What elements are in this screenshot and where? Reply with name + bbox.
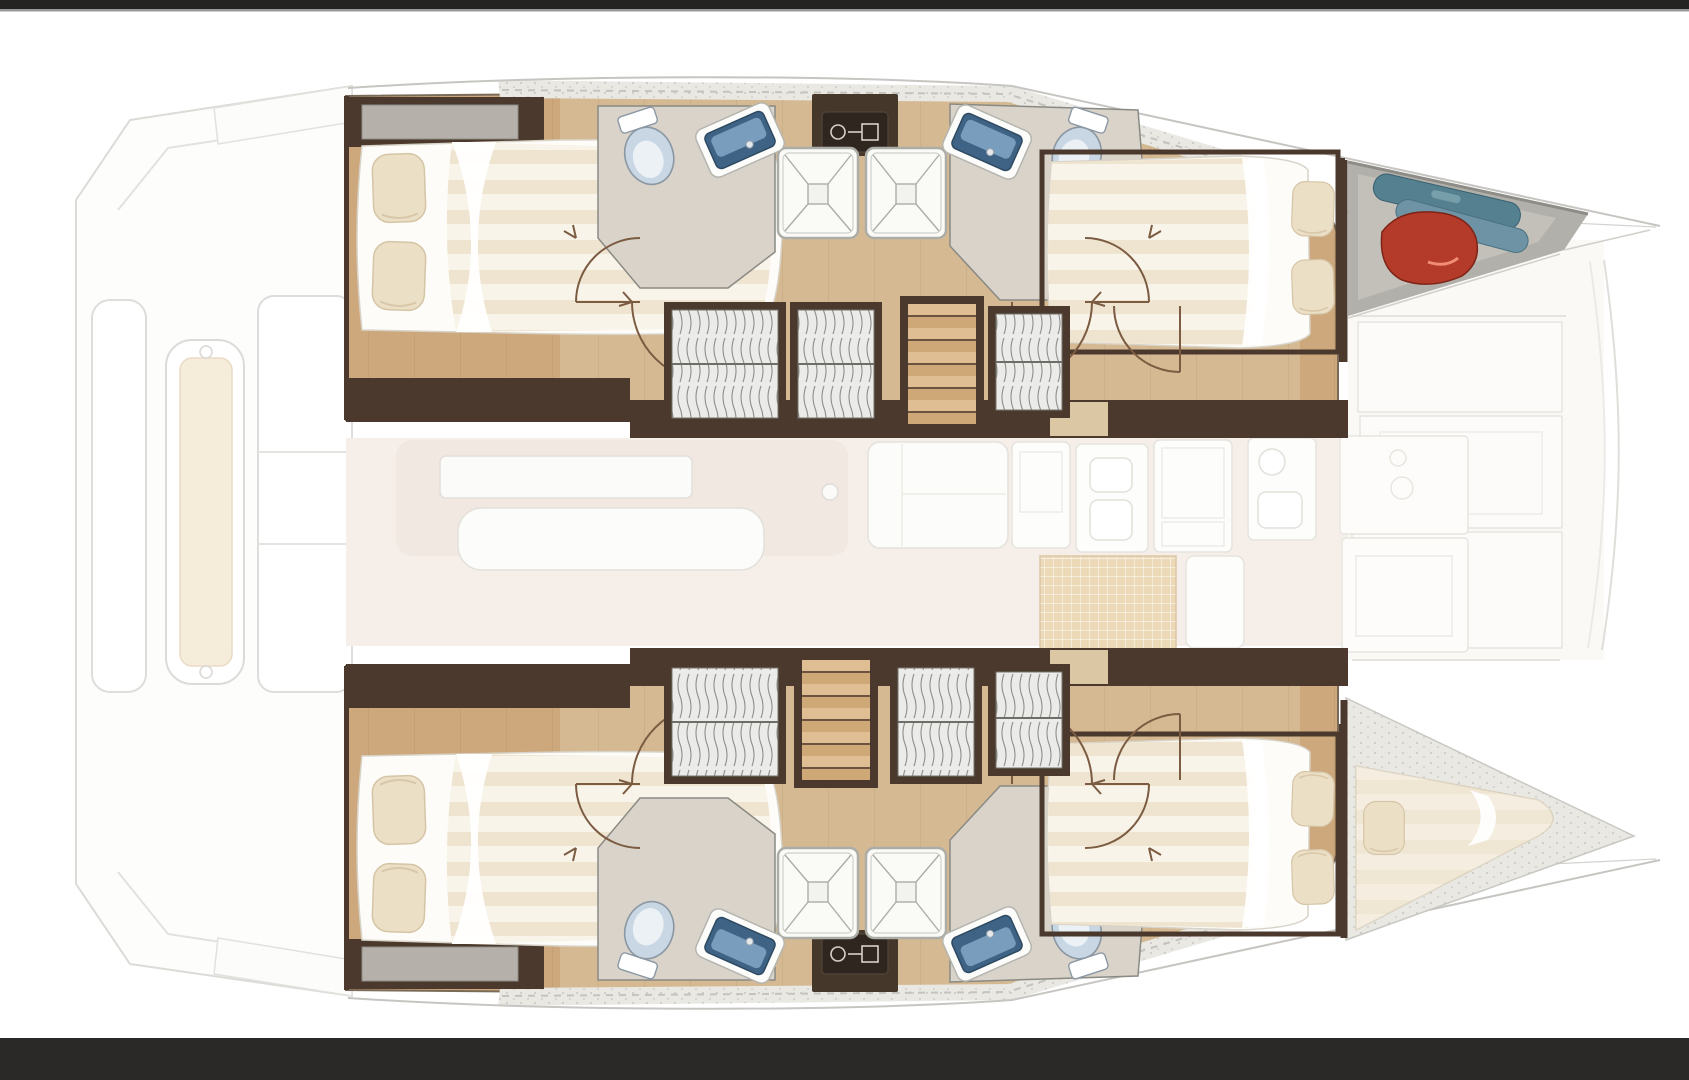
deck-fitting bbox=[822, 484, 838, 500]
cockpit-ghost bbox=[76, 86, 352, 996]
salon-table bbox=[440, 456, 692, 498]
salon-bench bbox=[458, 508, 764, 570]
floorplan-canvas bbox=[0, 0, 1689, 1080]
bottom-letterbox-bar bbox=[0, 1038, 1689, 1080]
salon bbox=[346, 436, 1468, 652]
bow-locker-panel bbox=[1358, 322, 1562, 412]
red-gear-bag-icon bbox=[1381, 212, 1477, 284]
stairs-icon bbox=[900, 296, 984, 432]
transom-steps bbox=[92, 300, 146, 692]
starboard-bow-berth bbox=[1344, 698, 1634, 940]
fwd-lockers bbox=[1340, 436, 1468, 652]
top-bar-rule bbox=[0, 9, 1689, 12]
port-wardrobe-row bbox=[664, 296, 1070, 432]
starboard-wardrobe-row bbox=[664, 652, 1070, 788]
screenshot-stage bbox=[0, 0, 1689, 1080]
galley-grid-mat bbox=[1040, 556, 1176, 650]
helm-bench bbox=[166, 340, 244, 684]
starboard-hull bbox=[344, 648, 1660, 1009]
cockpit-seats bbox=[258, 296, 352, 692]
top-letterbox-bar bbox=[0, 0, 1689, 9]
stairs-icon bbox=[794, 652, 878, 788]
